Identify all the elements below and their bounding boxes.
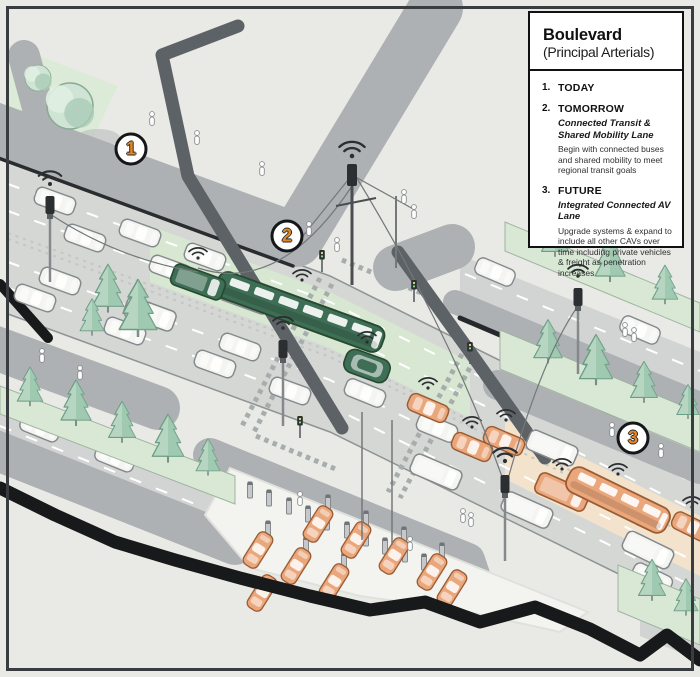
legend-description: Begin with connected buses and shared mo…: [558, 144, 673, 176]
legend-subheading: Connected Transit & Shared Mobility Lane: [558, 118, 673, 141]
callout-tomorrow: 2: [271, 220, 304, 253]
legend-heading: TODAY: [558, 82, 595, 94]
legend-item-today: 1. TODAY: [542, 82, 673, 94]
legend-panel: Boulevard (Principal Arterials) 1. TODAY…: [528, 11, 684, 248]
callout-number: 3: [628, 428, 638, 449]
callout-number: 2: [282, 226, 292, 247]
legend-title: Boulevard: [543, 26, 672, 44]
legend-item-tomorrow: 2. TOMORROW Connected Transit & Shared M…: [542, 103, 673, 176]
street-tree: [46, 83, 94, 129]
legend-description: Upgrade systems & expand to include all …: [558, 226, 673, 279]
callout-number: 1: [126, 139, 136, 160]
callout-today: 1: [115, 133, 148, 166]
legend-subheading: Integrated Connected AV Lane: [558, 200, 673, 223]
legend-items: 1. TODAY 2. TOMORROW Connected Transit &…: [530, 71, 682, 278]
legend-heading: TOMORROW: [558, 103, 673, 115]
legend-subtitle: (Principal Arterials): [543, 44, 672, 60]
legend-item-future: 3. FUTURE Integrated Connected AV Lane U…: [542, 185, 673, 279]
callout-future: 3: [617, 422, 650, 455]
legend-title-block: Boulevard (Principal Arterials): [530, 13, 682, 71]
boulevard-diagram: 1 2 3 Boulevard (Principal Arterials) 1.…: [0, 0, 700, 677]
legend-heading: FUTURE: [558, 185, 673, 197]
